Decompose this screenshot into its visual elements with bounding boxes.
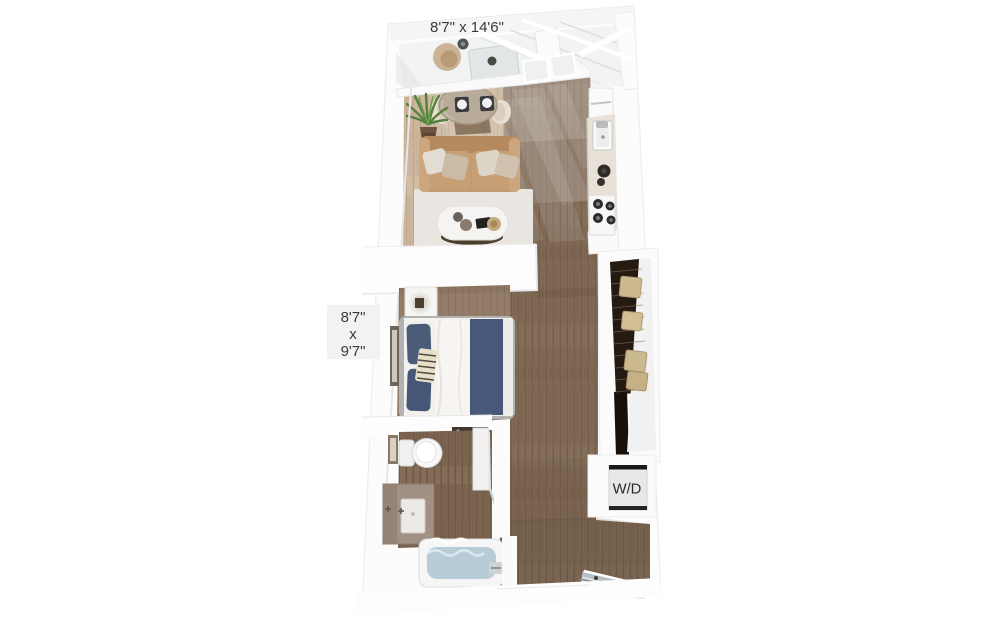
svg-text:8'7": 8'7": [341, 309, 366, 326]
svg-text:8'7" x 14'6": 8'7" x 14'6": [430, 19, 504, 36]
svg-text:x: x: [349, 326, 357, 343]
svg-text:9'7": 9'7": [341, 343, 366, 360]
svg-text:W/D: W/D: [613, 482, 642, 498]
